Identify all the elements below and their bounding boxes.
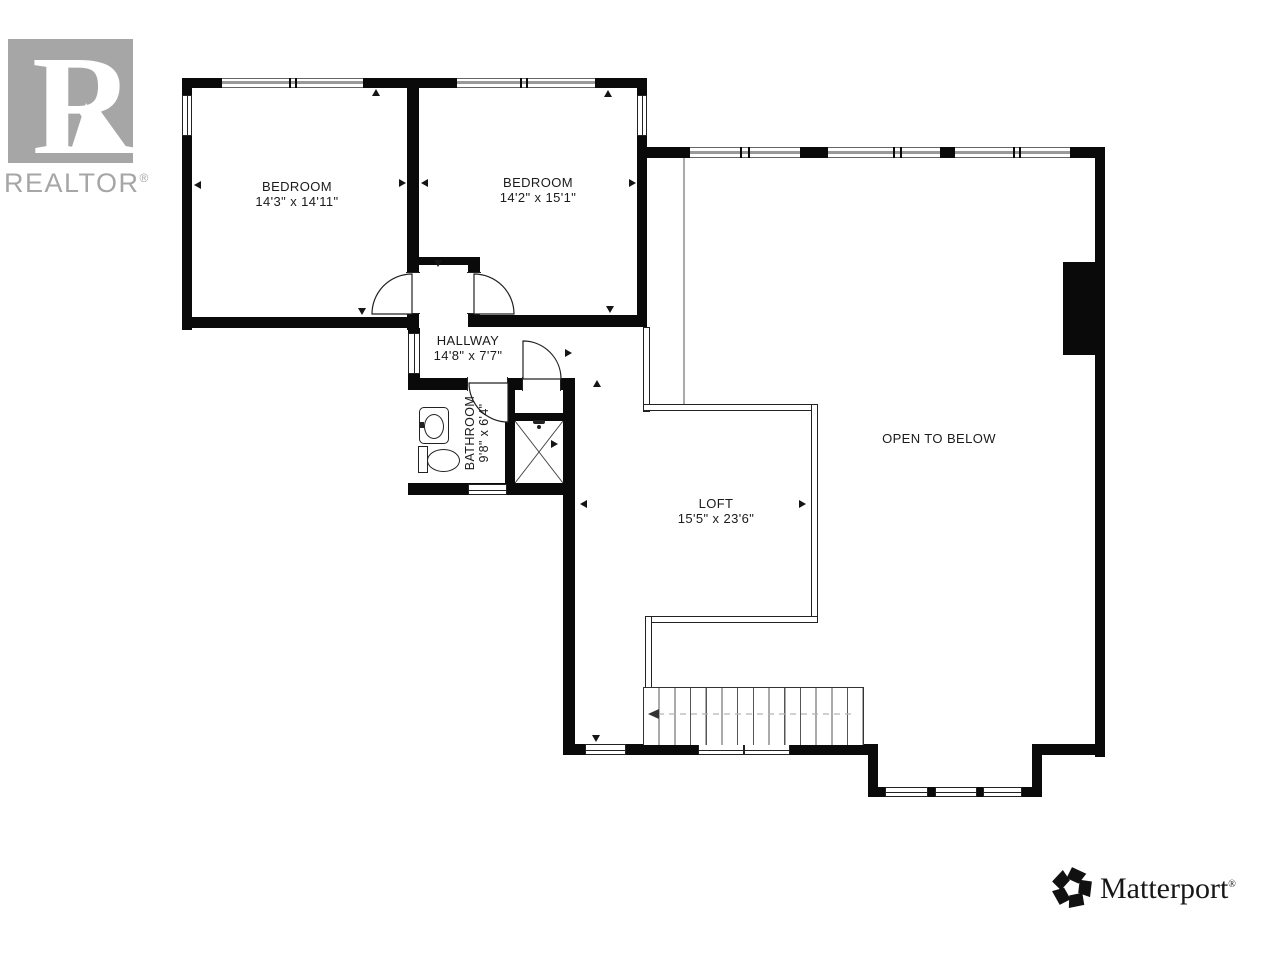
wall-bedroom1-bottom bbox=[182, 317, 419, 328]
sink-basin bbox=[424, 414, 444, 439]
realtor-word-text: REALTOR bbox=[4, 168, 140, 198]
window-mullion bbox=[748, 147, 750, 158]
door-opening-bedroom1 bbox=[406, 272, 420, 314]
window-bay-1 bbox=[885, 787, 928, 797]
realtor-wordmark: REALTOR® bbox=[4, 168, 174, 199]
window-mullion bbox=[740, 147, 742, 158]
window-mullion bbox=[900, 147, 902, 158]
room-name: LOFT bbox=[616, 496, 816, 511]
realtor-reg-mark: ® bbox=[140, 171, 150, 185]
window-bay-2 bbox=[935, 787, 977, 797]
railing-loft-west-upper bbox=[643, 327, 650, 412]
matterport-icon bbox=[1050, 866, 1094, 910]
wall-bottom-right bbox=[1032, 744, 1105, 755]
room-dimensions: 15'5" x 23'6" bbox=[616, 511, 816, 526]
window-mullion bbox=[1013, 147, 1015, 158]
wall-right-exterior bbox=[1095, 147, 1105, 757]
room-name: BATHROOM bbox=[463, 393, 477, 473]
railing-loft-south bbox=[645, 616, 818, 623]
window-mullion bbox=[295, 78, 297, 88]
matterport-wordmark: Matterport® bbox=[1100, 872, 1236, 906]
shower-x bbox=[515, 421, 563, 483]
shower-fixture-dot bbox=[537, 425, 541, 429]
room-label-bedroom1: BEDROOM 14'3" x 14'11" bbox=[197, 179, 397, 209]
wall-loft-left bbox=[563, 378, 575, 755]
railing-stair-side bbox=[645, 616, 652, 692]
wall-pier bbox=[1070, 147, 1105, 158]
room-label-bedroom2: BEDROOM 14'2" x 15'1" bbox=[438, 175, 638, 205]
wall-pier bbox=[800, 147, 828, 158]
room-name: OPEN TO BELOW bbox=[839, 431, 1039, 446]
window-bedroom1-left bbox=[182, 95, 192, 136]
window-bottom-1 bbox=[585, 744, 626, 755]
room-label-open-to-below: OPEN TO BELOW bbox=[839, 431, 1039, 446]
realtor-logo: R bbox=[8, 39, 133, 163]
window-bottom-2 bbox=[698, 744, 744, 755]
room-label-bathroom: BATHROOM 9'8" x 6'4" bbox=[463, 393, 491, 473]
window-mullion bbox=[520, 78, 522, 88]
wall-bathroom-closet-divider bbox=[505, 390, 515, 483]
door-opening-bathroom bbox=[467, 377, 508, 391]
room-dimensions: 14'8" x 7'7" bbox=[368, 348, 568, 363]
railing-loft-north bbox=[643, 404, 818, 411]
room-name: BEDROOM bbox=[197, 179, 397, 194]
window-bottom-3 bbox=[744, 744, 790, 755]
window-bedroom2-right bbox=[637, 95, 647, 136]
window-mullion bbox=[1019, 147, 1021, 158]
matterport-word-text: Matterport bbox=[1100, 872, 1228, 905]
shower-fixture bbox=[533, 420, 545, 424]
room-dimensions: 14'2" x 15'1" bbox=[438, 190, 638, 205]
toilet-bowl bbox=[427, 449, 460, 472]
room-dimensions: 14'3" x 14'11" bbox=[197, 194, 397, 209]
matterport-reg-mark: ® bbox=[1228, 879, 1236, 890]
room-name: BEDROOM bbox=[438, 175, 638, 190]
window-bay-3 bbox=[983, 787, 1022, 797]
window-mullion bbox=[289, 78, 291, 88]
fireplace-chase bbox=[1063, 262, 1097, 355]
sink-faucet bbox=[420, 422, 424, 428]
room-name: HALLWAY bbox=[368, 333, 568, 348]
wall-vestibule-top bbox=[418, 257, 470, 265]
wall-pier bbox=[940, 147, 955, 158]
room-label-hallway: HALLWAY 14'8" x 7'7" bbox=[368, 333, 568, 363]
staircase bbox=[643, 687, 864, 745]
window-mullion bbox=[893, 147, 895, 158]
window-bedroom1-top bbox=[222, 78, 363, 88]
room-label-loft: LOFT 15'5" x 23'6" bbox=[616, 496, 816, 526]
door-opening-closet bbox=[522, 377, 561, 391]
room-dimensions: 9'8" x 6'4" bbox=[477, 393, 491, 473]
floor-plan-canvas: BEDROOM 14'3" x 14'11" BEDROOM 14'2" x 1… bbox=[0, 0, 1280, 960]
wall-bedroom2-bottom bbox=[468, 315, 647, 327]
door-opening-bedroom2 bbox=[467, 272, 481, 314]
window-bathroom-bottom bbox=[468, 484, 507, 495]
window-mullion bbox=[526, 78, 528, 88]
